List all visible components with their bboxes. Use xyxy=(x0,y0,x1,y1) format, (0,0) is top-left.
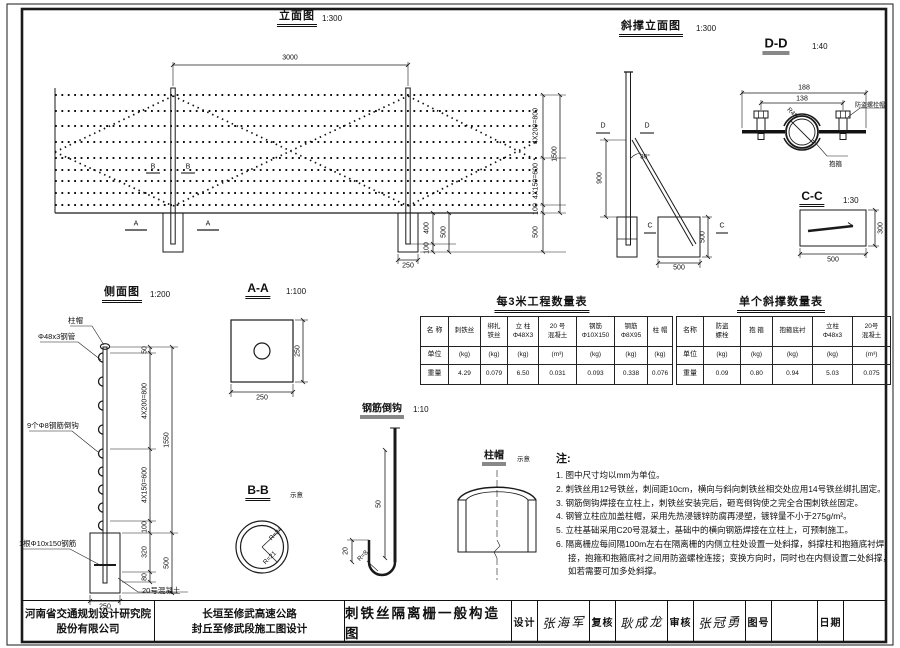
elevation-span-dim: 3000 xyxy=(282,55,298,62)
side-dim-total: 1550 xyxy=(164,432,171,448)
brace-quantity-table: 名称 防盗螺栓 抱 箍 抱箍底衬 立柱Φ48x3 20号混凝土 单位 (kg) … xyxy=(676,316,891,385)
section-a-marker: A xyxy=(134,221,139,228)
unit-cell: (kg) xyxy=(481,347,508,365)
side-dim-320: 320 xyxy=(142,546,149,558)
unit-cell: (kg) xyxy=(704,347,741,365)
qty-cell: 0.076 xyxy=(648,365,673,385)
company-name-line1: 河南省交通规划设计研究院 xyxy=(25,607,151,621)
note-item: 3. 钢筋倒钩焊接在立柱上，刺铁丝安装完后，砸弯倒钩使之完全合围刺铁丝固定。 xyxy=(556,497,894,511)
section-c-marker: C xyxy=(647,223,652,230)
found-depth-dim: 500 xyxy=(441,226,448,238)
check-label-cell: 复核 xyxy=(590,601,616,642)
section-d-marker: D xyxy=(600,123,605,130)
drawing-title-cell: 刺铁丝隔离栅一般构造图 xyxy=(345,601,512,642)
bb-title: B-B xyxy=(245,483,270,501)
cc-title: C-C xyxy=(799,189,824,207)
cc-scale: 1:30 xyxy=(843,196,859,205)
design-label: 设计 xyxy=(514,614,536,629)
found-under-dim: 100 xyxy=(424,242,431,254)
check-signature: 耿成龙 xyxy=(619,611,663,632)
section-a-marker: A xyxy=(206,221,211,228)
review-signature: 张冠勇 xyxy=(697,611,741,632)
section-b-marker: B xyxy=(186,164,191,171)
drawing-sheet: 立面图 1:300 3000 A A B B 4X200=800 4X150=6… xyxy=(0,0,900,648)
aa-scale: 1:100 xyxy=(286,287,306,296)
rebar-hooks-label: 9个Φ8钢筋倒钩 xyxy=(27,420,79,431)
qty-cell: 0.94 xyxy=(773,365,813,385)
clamp-label: 抱箍 xyxy=(829,158,842,168)
unit-cell: (kg) xyxy=(577,347,615,365)
col-header: 抱 箍 xyxy=(741,317,773,347)
elevation-title: 立面图 xyxy=(277,7,317,27)
aa-dim-h: 250 xyxy=(295,345,302,357)
notes-heading: 注: xyxy=(556,450,894,466)
elevation-dim-found: 500 xyxy=(533,226,540,238)
brace-height-dim: 900 xyxy=(597,172,604,184)
section-c-marker: C xyxy=(719,223,724,230)
design-signature: 张海军 xyxy=(541,611,585,632)
section-b-marker: B xyxy=(151,164,156,171)
date-value-cell xyxy=(844,601,886,642)
aa-detail xyxy=(231,320,308,397)
hook-dim-return: 20 xyxy=(343,547,350,555)
brace-angle: 30° xyxy=(640,154,650,161)
company-name-line2: 股份有限公司 xyxy=(57,622,120,636)
note-item: 5. 立柱基础采用C20号混凝土，基础中的横向钢筋焊接在立柱上，可预制施工。 xyxy=(556,524,894,538)
design-label-cell: 设计 xyxy=(512,601,538,642)
row-label-qty: 重量 xyxy=(421,365,449,385)
row-label-unit: 单位 xyxy=(421,347,449,365)
steel-pipe-label: Φ48x3钢管 xyxy=(38,331,75,342)
aa-title: A-A xyxy=(245,281,270,299)
notes-block: 注: 1. 图中尺寸均以mm为单位。 2. 刺铁丝用12号铁丝，刺间距10cm，… xyxy=(556,450,894,579)
review-label-cell: 审核 xyxy=(668,601,694,642)
dd-scale: 1:40 xyxy=(812,42,828,51)
dd-outer-dim: 188 xyxy=(798,85,810,92)
dd-title: D-D xyxy=(762,36,789,55)
anti-theft-bolt-label: 防盗螺栓帽 xyxy=(855,100,885,109)
cc-width-dim: 500 xyxy=(827,257,839,264)
unit-cell: (kg) xyxy=(508,347,539,365)
unit-cell: (m³) xyxy=(539,347,577,365)
col-header: 抱箍底衬 xyxy=(773,317,813,347)
title-block: 河南省交通规划设计研究院 股份有限公司 长垣至修武高速公路 封丘至修武段施工图设… xyxy=(22,600,886,642)
number-label-cell: 图号 xyxy=(746,601,772,642)
unit-cell: (kg) xyxy=(741,347,773,365)
post-cap-label: 柱帽 xyxy=(68,315,83,326)
side-dim-top: 4X200=800 xyxy=(142,383,149,419)
unit-cell: (m³) xyxy=(853,347,891,365)
qty-cell: 0.031 xyxy=(539,365,577,385)
qty-cell: 0.093 xyxy=(577,365,615,385)
unit-cell: (kg) xyxy=(813,347,853,365)
qty-cell: 0.80 xyxy=(741,365,773,385)
col-header: 刺铁丝 xyxy=(449,317,481,347)
aa-dim-w: 250 xyxy=(256,395,268,402)
elevation-drawing xyxy=(55,62,566,264)
col-header: 钢筋Φ8X95 xyxy=(615,317,648,347)
note-item: 2. 刺铁丝用12号铁丝，刺间距10cm，横向与斜向刺铁丝相交处应用14号铁丝绑… xyxy=(556,483,894,497)
brace-found-depth-dim: 500 xyxy=(700,231,707,243)
brace-table-title: 单个斜撑数量表 xyxy=(737,293,825,313)
drawing-title: 刺铁丝隔离栅一般构造图 xyxy=(345,602,511,642)
note-item: 4. 钢管立柱应加盖柱帽，采用先热浸镀锌防腐再浸塑，镀锌量不小于275g/m²。 xyxy=(556,510,894,524)
hook-dim-len: 50 xyxy=(376,500,383,508)
side-dim-found: 500 xyxy=(164,557,171,569)
elevation-dim-bottom: 4X150=600 xyxy=(533,163,540,199)
project-cell: 长垣至修武高速公路 封丘至修武段施工图设计 xyxy=(155,601,345,642)
number-value-cell xyxy=(772,601,818,642)
col-header: 绑扎铁丝 xyxy=(481,317,508,347)
cc-detail xyxy=(800,210,879,258)
side-dim-100: 100 xyxy=(142,521,149,533)
col-header: 防盗螺栓 xyxy=(704,317,741,347)
qty-cell: 5.03 xyxy=(813,365,853,385)
col-header: 立 柱Φ48X3 xyxy=(508,317,539,347)
col-header: 名 称 xyxy=(421,317,449,347)
unit-cell: (kg) xyxy=(449,347,481,365)
project-name-line1: 长垣至修武高速公路 xyxy=(202,607,297,621)
company-cell: 河南省交通规划设计研究院 股份有限公司 xyxy=(22,601,155,642)
hook-detail xyxy=(347,428,400,575)
hook-scale: 1:10 xyxy=(413,405,429,414)
col-header: 钢筋Φ10X150 xyxy=(577,317,615,347)
side-view-title: 侧面图 xyxy=(102,283,142,303)
qty-cell: 4.29 xyxy=(449,365,481,385)
review-signature-cell: 张冠勇 xyxy=(694,601,746,642)
side-dim-50: 50 xyxy=(142,346,149,354)
found-embed-dim: 400 xyxy=(424,222,431,234)
unit-cell: (kg) xyxy=(615,347,648,365)
brace-found-width-dim: 500 xyxy=(673,265,685,272)
unit-cell: (kg) xyxy=(648,347,673,365)
dd-inner-dim: 138 xyxy=(796,96,808,103)
brace-scale: 1:300 xyxy=(696,24,716,33)
check-signature-cell: 耿成龙 xyxy=(616,601,668,642)
per3m-table-title: 每3米工程数量表 xyxy=(494,293,589,313)
note-item: 1. 图中尺寸均以mm为单位。 xyxy=(556,469,894,483)
concrete-label: 20号混凝土 xyxy=(142,585,180,596)
hook-title: 钢筋倒钩 xyxy=(360,400,404,419)
brace-title: 斜撑立面图 xyxy=(619,17,683,37)
cap-detail xyxy=(458,470,536,580)
drawing-number-label: 图号 xyxy=(748,614,770,629)
review-label: 审核 xyxy=(670,614,692,629)
elevation-dim-top: 4X200=800 xyxy=(533,108,540,144)
col-header: 立柱Φ48x3 xyxy=(813,317,853,347)
row-label-qty: 重量 xyxy=(677,365,704,385)
cc-height-dim: 300 xyxy=(878,222,885,234)
bb-note: 示意 xyxy=(290,489,303,499)
elevation-dim-total: 1500 xyxy=(552,146,559,162)
col-header: 名称 xyxy=(677,317,704,347)
per3m-table: 名 称 刺铁丝 绑扎铁丝 立 柱Φ48X3 20 号混凝土 钢筋Φ10X150 … xyxy=(420,316,673,385)
note-item: 6. 隔离栅应每间隔100m左右在隔离栅的内侧立柱处设置一处斜撑，斜撑柱和抱箍底… xyxy=(556,538,894,579)
qty-cell: 0.09 xyxy=(704,365,741,385)
qty-cell: 0.075 xyxy=(853,365,891,385)
design-signature-cell: 张海军 xyxy=(538,601,590,642)
elevation-scale: 1:300 xyxy=(322,14,342,23)
unit-cell: (kg) xyxy=(773,347,813,365)
qty-cell: 6.50 xyxy=(508,365,539,385)
brace-drawing xyxy=(596,72,728,268)
row-label-unit: 单位 xyxy=(677,347,704,365)
col-header: 20 号混凝土 xyxy=(539,317,577,347)
cap-title: 柱帽 xyxy=(482,447,506,466)
side-dim-80: 80 xyxy=(142,573,149,581)
elevation-dim-ground: 100 xyxy=(533,203,540,215)
check-label: 复核 xyxy=(592,614,614,629)
col-header: 20号混凝土 xyxy=(853,317,891,347)
rebar-label: 1根Φ10x150钢筋 xyxy=(19,538,76,549)
side-dim-bottom: 4X150=600 xyxy=(142,467,149,503)
qty-cell: 0.079 xyxy=(481,365,508,385)
qty-cell: 0.338 xyxy=(615,365,648,385)
cap-note: 示意 xyxy=(517,453,530,463)
project-name-line2: 封丘至修武段施工图设计 xyxy=(192,622,308,636)
date-label: 日期 xyxy=(820,614,842,629)
found-width-dim: 250 xyxy=(402,263,414,270)
side-view-scale: 1:200 xyxy=(150,290,170,299)
col-header: 柱 帽 xyxy=(648,317,673,347)
date-label-cell: 日期 xyxy=(818,601,844,642)
section-d-marker: D xyxy=(644,123,649,130)
